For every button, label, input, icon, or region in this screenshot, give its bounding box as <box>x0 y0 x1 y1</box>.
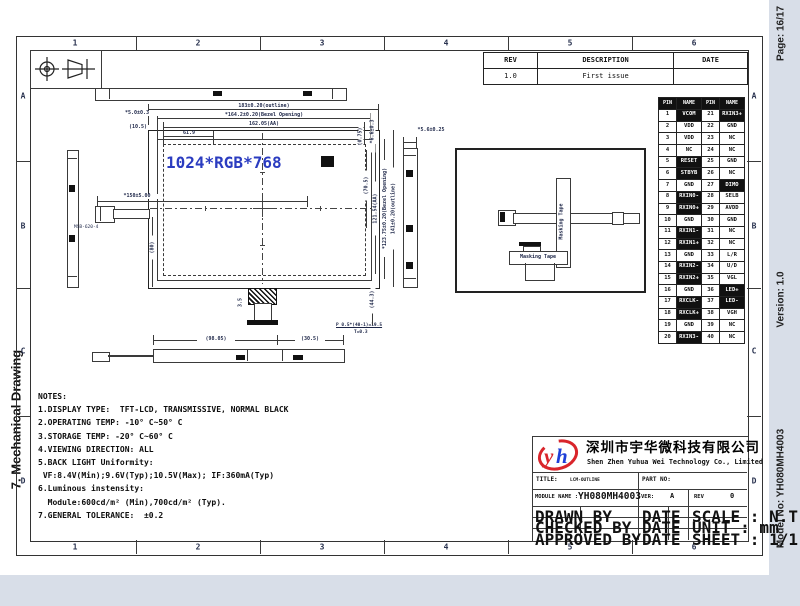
notes-block: NOTES:1.DISPLAY TYPE: TFT-LCD, TRANSMISS… <box>38 390 288 522</box>
grid-tick <box>747 288 761 289</box>
pin-pin-cell: 33 <box>702 250 720 262</box>
pin-pin-cell: 13 <box>659 250 677 262</box>
pin-pin-cell: 15 <box>659 273 677 285</box>
pin-pin-cell: 35 <box>702 273 720 285</box>
top-view-tape-mark <box>213 91 222 96</box>
description-header: DESCRIPTION <box>538 53 674 69</box>
grid-tick <box>260 36 261 50</box>
ext-line <box>343 335 344 345</box>
pin-pin-cell: 12 <box>659 238 677 250</box>
grid-tick <box>747 416 761 417</box>
ext-line <box>277 335 278 345</box>
bottom-view-divider <box>247 349 248 361</box>
pin-pin-cell: 28 <box>702 191 720 203</box>
pin-table: PIN NAME PIN NAME 1VCOM21RXIN3+2VDD22GND… <box>658 97 745 344</box>
ver-value: A <box>670 493 674 500</box>
note-line: 2.OPERATING TEMP: -10° C~50° C <box>38 416 288 429</box>
note-line: 4.VIEWING DIRECTION: ALL <box>38 443 288 456</box>
name-col-header: NAME <box>677 98 702 110</box>
grid-label: B <box>21 222 26 231</box>
version-label: Version: 1.0 <box>776 240 787 360</box>
pin-name-cell: GND <box>677 320 702 332</box>
dim-bezel-opening-width: *164.2±0.20(Bezel Opening) <box>198 113 330 118</box>
title-block-line <box>532 472 747 473</box>
dim-line <box>157 118 370 119</box>
pin-name-cell: LED- <box>720 297 745 309</box>
masking-tape-horizontal-label: Masking Tape <box>512 255 564 260</box>
grid-tick <box>384 540 385 554</box>
pin-name-cell: SELB <box>720 191 745 203</box>
third-angle-projection-icon <box>32 52 98 86</box>
bottom-view <box>153 349 345 363</box>
pin-pin-cell: 29 <box>702 203 720 215</box>
dim-outline-width: 183±0.20(outline) <box>213 104 315 109</box>
dim-line <box>163 136 213 137</box>
grid-label: 1 <box>73 39 78 48</box>
left-side-view-mark <box>69 235 75 242</box>
note-line: 3.STORAGE TEMP: -20° C~60° C <box>38 430 288 443</box>
dim-150: *150±5.00 <box>112 194 162 199</box>
fpc-connector-left-detail <box>100 206 101 221</box>
center-tick <box>320 206 321 211</box>
left-side-view-mark <box>69 185 75 192</box>
rev-value: 0 <box>730 493 734 500</box>
bottom-fpc-connector <box>247 320 278 325</box>
pin-name-cell: RXIN1- <box>677 226 702 238</box>
approved-by-label: APPROVED BY <box>535 532 641 548</box>
pin-pin-cell: 30 <box>702 215 720 227</box>
module-name-value: YH080MH4003 <box>578 492 641 502</box>
masking-tape-vertical-label: Masking Tape <box>560 200 565 244</box>
bottom-view-connector <box>92 352 110 362</box>
grid-label: 4 <box>444 39 449 48</box>
pin-pin-cell: 17 <box>659 297 677 309</box>
pin-pin-cell: 16 <box>659 285 677 297</box>
dim-line <box>97 201 307 202</box>
pin-pin-cell: 38 <box>702 308 720 320</box>
right-side-view-mark <box>406 225 413 232</box>
grid-label: 1 <box>73 543 78 552</box>
pin-pin-cell: 1 <box>659 110 677 122</box>
dim-30-5: (30.5) <box>295 337 325 342</box>
dim-outline-height: 141±0.20(outline) <box>392 168 397 250</box>
back-view-fpc-fold <box>525 263 555 281</box>
pin-name-cell: NC <box>720 168 745 180</box>
dim-10-5: (10.5) <box>122 125 154 130</box>
grid-label: 3 <box>320 543 325 552</box>
back-view-connector-detail <box>500 212 505 222</box>
grid-tick <box>16 161 30 162</box>
note-line: 1.DISPLAY TYPE: TFT-LCD, TRANSMISSIVE, N… <box>38 403 288 416</box>
title-block-line <box>532 489 747 490</box>
dim-active-area-width: 162.05(AA) <box>233 122 295 127</box>
pin-name-cell: STBYB <box>677 168 702 180</box>
center-tick <box>205 206 206 211</box>
grid-label: 6 <box>692 39 697 48</box>
note-line: 5.BACK LIGHT Uniformity: <box>38 456 288 469</box>
pin-pin-cell: 19 <box>659 320 677 332</box>
pin-pin-cell: 11 <box>659 226 677 238</box>
company-name-cn: 深圳市宇华微科技有限公司 <box>586 441 760 455</box>
pin-name-cell: VGH <box>720 308 745 320</box>
left-side-view-cap <box>67 158 77 159</box>
dim-0-75: (0.75) <box>359 122 364 152</box>
dim-98-05: (98.05) <box>197 337 235 342</box>
pin-pin-cell: 9 <box>659 203 677 215</box>
notes-list: NOTES:1.DISPLAY TYPE: TFT-LCD, TRANSMISS… <box>38 390 288 522</box>
ver-label: VER: <box>641 495 654 501</box>
rev-table: REV DESCRIPTION DATE 1.0 First issue <box>483 52 748 85</box>
rev-value-cell: 1.0 <box>484 69 538 85</box>
pin-pin-cell: 24 <box>702 145 720 157</box>
right-side-view-mark <box>406 262 413 269</box>
note-line: 7.GENERAL TOLERANCE: ±0.2 <box>38 509 288 522</box>
dim-line <box>163 127 364 128</box>
dim-fpc-thickness: T=0.3 <box>354 331 368 336</box>
pin-name-cell: GND <box>720 215 745 227</box>
ext-line <box>378 104 379 130</box>
name-col-header: NAME <box>720 98 745 110</box>
title-field-label: TITLE: <box>536 477 558 483</box>
grid-tick <box>508 36 509 50</box>
pin-name-cell: NC <box>720 145 745 157</box>
svg-text:h: h <box>556 444 568 468</box>
left-side-view-cap <box>67 276 77 277</box>
pin-pin-cell: 25 <box>702 156 720 168</box>
center-tick <box>260 245 265 246</box>
grid-label: 2 <box>196 543 201 552</box>
grid-label: B <box>752 222 757 231</box>
pin-name-cell: GND <box>720 121 745 133</box>
note-line: VF:8.4V(Min);9.6V(Typ);10.5V(Max); IF:36… <box>38 469 288 482</box>
grid-label: D <box>752 477 757 486</box>
pin-pin-cell: 5 <box>659 156 677 168</box>
right-side-view-cap <box>403 155 416 156</box>
grid-label: A <box>752 92 757 101</box>
ext-line <box>163 122 164 144</box>
dim-44-3: (44.3) <box>371 286 376 314</box>
pin-name-cell: RXIN3+ <box>720 110 745 122</box>
top-view-tape-mark <box>303 91 312 96</box>
panel-resolution-label: 1024*RGB*768 <box>166 155 282 171</box>
date-header: DATE <box>674 53 748 69</box>
rev-description-cell: First issue <box>538 69 674 85</box>
pin-name-cell: GND <box>677 215 702 227</box>
grid-label: C <box>21 347 26 356</box>
pin-pin-cell: 14 <box>659 261 677 273</box>
dim-70-5: (70.5) <box>365 171 370 201</box>
top-view-divider <box>109 88 110 99</box>
dim-5-6: *5.6±0.25 <box>408 128 454 133</box>
ext-line <box>153 335 154 345</box>
pin-pin-cell: 22 <box>702 121 720 133</box>
title-field-value: LCM-OUTLINE <box>570 479 600 484</box>
left-side-view <box>67 150 79 288</box>
pin-pin-cell: 40 <box>702 332 720 344</box>
grid-tick <box>136 36 137 50</box>
ext-line <box>416 137 417 148</box>
pin-pin-cell: 37 <box>702 297 720 309</box>
pin-pin-cell: 31 <box>702 226 720 238</box>
grid-tick <box>508 540 509 554</box>
dim-active-area-height: 121.54(AA) <box>374 182 379 236</box>
pin-pin-cell: 2 <box>659 121 677 133</box>
pin-name-cell: GND <box>720 156 745 168</box>
pin-name-cell: RXCLK+ <box>677 308 702 320</box>
bottom-view-tape-mark <box>293 355 303 360</box>
note-line: 6.Luminous instensity: <box>38 482 288 495</box>
bottom-view-wire <box>108 355 153 357</box>
grid-label: 3 <box>320 39 325 48</box>
pin-name-cell: NC <box>720 320 745 332</box>
datasheet-page: 7. Mechanical Drawing Page: 16/17 Versio… <box>0 0 800 606</box>
fpc-connector-left <box>95 206 115 223</box>
note-line: Module:600cd/m² (Min),700cd/m² (Typ). <box>38 496 288 509</box>
pin-name-cell: NC <box>677 145 702 157</box>
pin-name-cell: L/R <box>720 250 745 262</box>
pin-pin-cell: 20 <box>659 332 677 344</box>
part-no-label: PART NO: <box>642 477 671 483</box>
pin-pin-cell: 3 <box>659 133 677 145</box>
pin-pin-cell: 8 <box>659 191 677 203</box>
right-side-view-mark <box>406 170 413 177</box>
ext-line <box>364 122 365 144</box>
pin-name-cell: RXIN0+ <box>677 203 702 215</box>
pin-pin-cell: 34 <box>702 261 720 273</box>
dim-80: (80) <box>151 236 156 260</box>
grid-label: D <box>21 477 26 486</box>
pin-name-cell: U/D <box>720 261 745 273</box>
corner-mark <box>321 156 334 167</box>
date-label: DATE <box>642 532 681 548</box>
grid-tick <box>632 36 633 50</box>
pin-name-cell: RESET <box>677 156 702 168</box>
center-tick <box>260 172 265 173</box>
rev-header: REV <box>484 53 538 69</box>
pin-name-cell: VGL <box>720 273 745 285</box>
grid-label: C <box>752 347 757 356</box>
pin-pin-cell: 18 <box>659 308 677 320</box>
pin-pin-cell: 39 <box>702 320 720 332</box>
company-name-en: Shen Zhen Yuhua Wei Technology Co., Limi… <box>587 459 763 466</box>
dim-bezel-opening-height: *123.75±0.20(Bezel Opening) <box>383 160 388 257</box>
pin-name-cell: NC <box>720 332 745 344</box>
grid-label: 2 <box>196 39 201 48</box>
grid-tick <box>136 540 137 554</box>
bottom-view-divider <box>282 349 283 361</box>
dim-6-6: *6.6±0.3 <box>371 111 376 153</box>
pin-name-cell: RXIN1+ <box>677 238 702 250</box>
pin-name-cell: GND <box>677 180 702 192</box>
fpc-cable-left <box>113 209 150 219</box>
dim-line <box>403 142 416 143</box>
dim-61-9: 61.9 <box>176 131 202 136</box>
dim-5-0: *5.0±0.3 <box>116 111 158 116</box>
sheet-label: SHEET : 1/1 <box>692 532 798 548</box>
pin-col-header: PIN <box>659 98 677 110</box>
pin-name-cell: DIMO <box>720 180 745 192</box>
back-view-cable-collar <box>612 212 624 225</box>
grid-tick <box>384 36 385 50</box>
pin-name-cell: RXIN3- <box>677 332 702 344</box>
grid-label: 4 <box>444 543 449 552</box>
pin-col-header: PIN <box>702 98 720 110</box>
bottom-view-tape-mark <box>236 355 245 360</box>
company-logo: y h <box>537 439 583 471</box>
pin-pin-cell: 23 <box>702 133 720 145</box>
note-line: NOTES: <box>38 390 288 403</box>
grid-label: A <box>21 92 26 101</box>
page-number-label: Page: 16/17 <box>776 0 787 94</box>
dim-3-5: 3.5 <box>239 294 244 312</box>
pin-name-cell: GND <box>677 285 702 297</box>
pin-pin-cell: 32 <box>702 238 720 250</box>
pin-name-cell: RXIN0- <box>677 191 702 203</box>
pin-name-cell: VDD <box>677 121 702 133</box>
connector-code-label: MSB-620-4 <box>74 226 98 231</box>
ext-line <box>213 131 214 144</box>
pin-pin-cell: 10 <box>659 215 677 227</box>
grid-label: 5 <box>568 39 573 48</box>
pin-name-cell: NC <box>720 238 745 250</box>
pin-name-cell: NC <box>720 133 745 145</box>
pin-name-cell: VCOM <box>677 110 702 122</box>
pin-name-cell: GND <box>677 250 702 262</box>
pin-name-cell: VDD <box>677 133 702 145</box>
pin-pin-cell: 4 <box>659 145 677 157</box>
grid-tick <box>16 288 30 289</box>
pin-pin-cell: 36 <box>702 285 720 297</box>
pin-pin-cell: 6 <box>659 168 677 180</box>
grid-tick <box>260 540 261 554</box>
module-name-label: MODULE NAME : <box>535 495 578 501</box>
ext-line <box>307 196 308 207</box>
dim-line <box>148 109 378 110</box>
pin-table-body: 1VCOM21RXIN3+2VDD22GND3VDD23NC4NC24NC5RE… <box>659 110 745 344</box>
rev-label: REV <box>694 495 704 501</box>
dim-fpc-pitch: P 0.5*(40-1)=19.5 <box>336 324 382 329</box>
projection-symbol-box <box>30 50 102 89</box>
pin-name-cell: RXCLK- <box>677 297 702 309</box>
pin-name-cell: NC <box>720 226 745 238</box>
rev-date-cell <box>674 69 748 85</box>
right-side-view-cap <box>403 278 416 279</box>
top-view-divider <box>332 88 333 99</box>
grid-tick <box>747 161 761 162</box>
pin-pin-cell: 26 <box>702 168 720 180</box>
pin-name-cell: RXIN2+ <box>677 273 702 285</box>
pin-pin-cell: 7 <box>659 180 677 192</box>
pin-name-cell: LED+ <box>720 285 745 297</box>
pin-name-cell: AVDD <box>720 203 745 215</box>
pin-name-cell: RXIN2- <box>677 261 702 273</box>
pin-pin-cell: 27 <box>702 180 720 192</box>
title-block-line <box>688 489 689 540</box>
grid-tick <box>16 416 30 417</box>
pin-pin-cell: 21 <box>702 110 720 122</box>
ext-line <box>157 113 158 139</box>
